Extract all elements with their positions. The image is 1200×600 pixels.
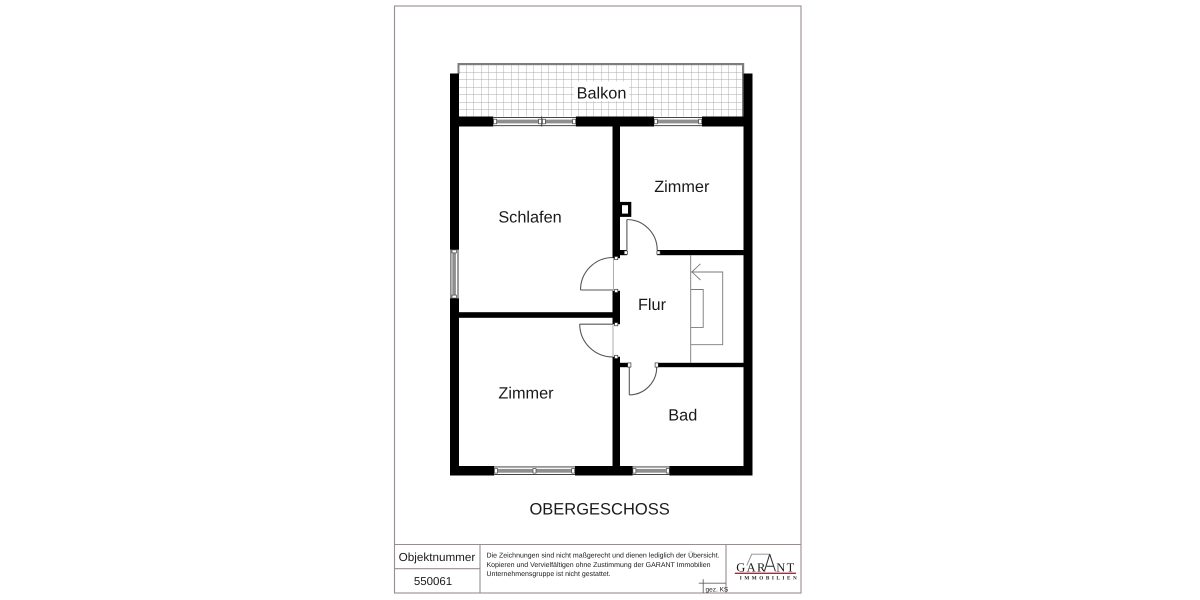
svg-text:gez. KS: gez. KS <box>706 586 729 593</box>
svg-text:Kopieren und Vervielfältigen o: Kopieren und Vervielfältigen ohne Zustim… <box>487 561 711 569</box>
svg-text:IMMOBILIEN: IMMOBILIEN <box>740 575 800 581</box>
svg-text:Zimmer: Zimmer <box>498 384 554 402</box>
svg-text:Objektnummer: Objektnummer <box>399 551 476 564</box>
svg-text:Schlafen: Schlafen <box>498 209 561 227</box>
svg-text:Bad: Bad <box>668 407 697 425</box>
svg-text:GAR: GAR <box>736 560 766 574</box>
svg-text:Flur: Flur <box>638 296 667 314</box>
svg-text:OBERGESCHOSS: OBERGESCHOSS <box>529 501 669 519</box>
svg-text:Zimmer: Zimmer <box>654 178 710 196</box>
svg-text:550061: 550061 <box>414 576 452 588</box>
svg-text:Die Zeichnungen sind nicht maß: Die Zeichnungen sind nicht maßgerecht un… <box>487 551 720 559</box>
svg-text:Unternehmensgruppe ist nicht g: Unternehmensgruppe ist nicht gestattet. <box>487 570 611 578</box>
svg-text:NT: NT <box>776 560 795 574</box>
svg-text:Balkon: Balkon <box>577 84 627 102</box>
